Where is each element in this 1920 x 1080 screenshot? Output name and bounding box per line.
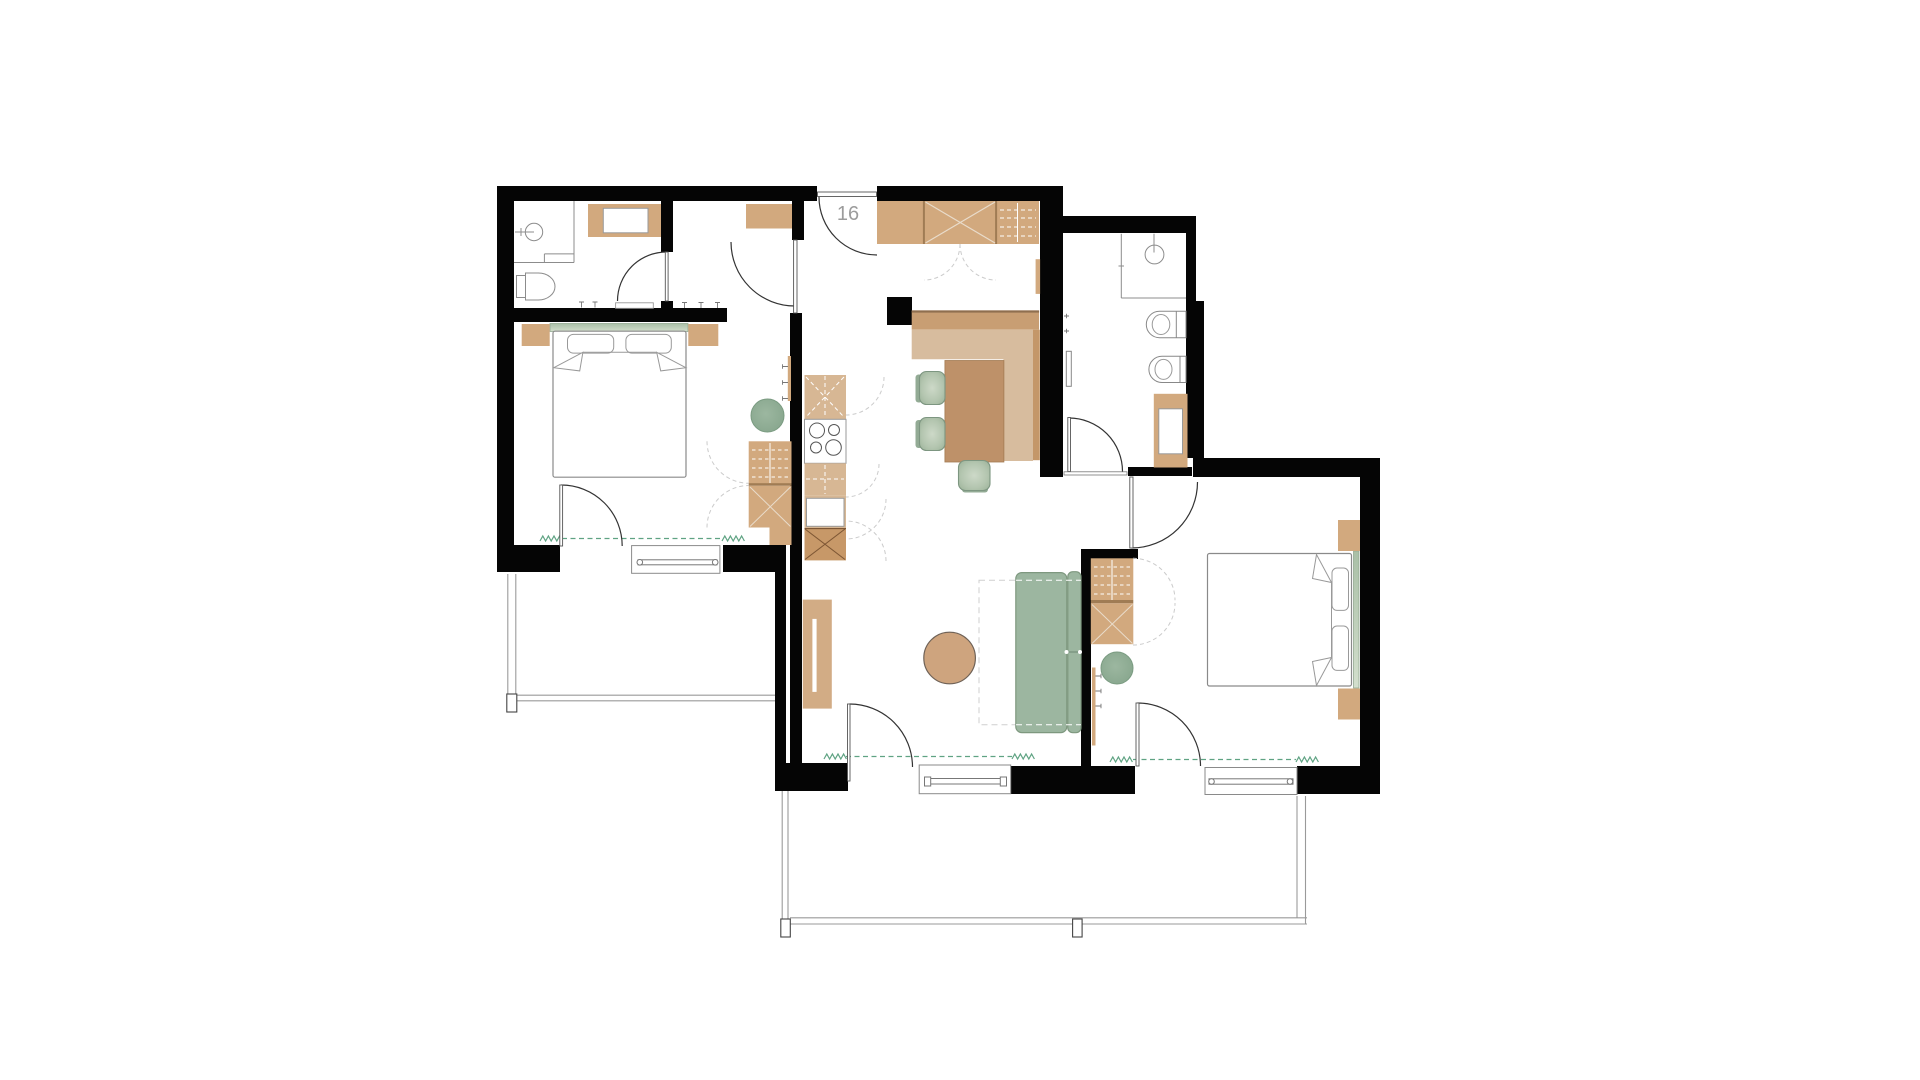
svg-text:16: 16	[837, 203, 859, 225]
